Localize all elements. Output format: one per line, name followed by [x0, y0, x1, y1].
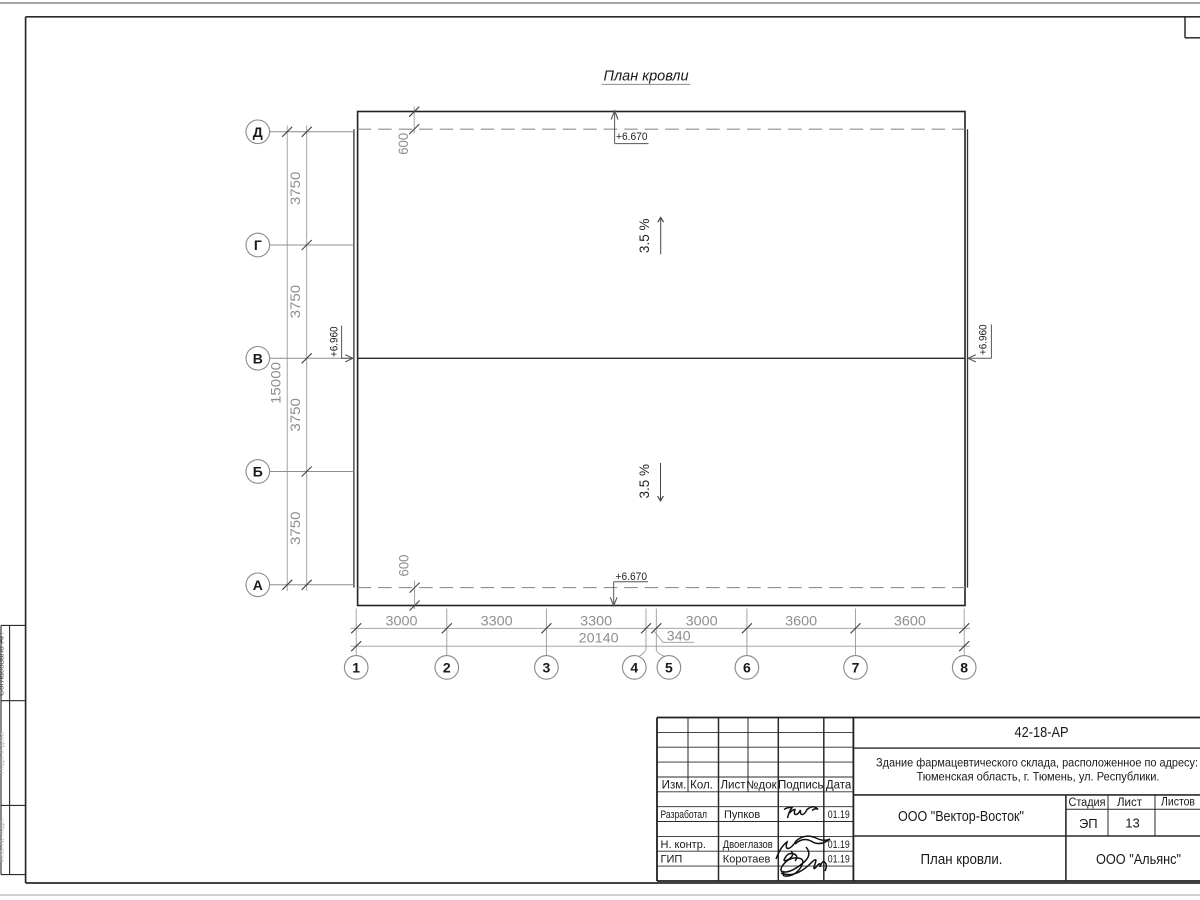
svg-text:Коротаев: Коротаев [723, 854, 771, 866]
svg-text:№док.: №док. [746, 779, 780, 791]
svg-text:ООО "Вектор-Восток": ООО "Вектор-Восток" [898, 808, 1024, 825]
svg-text:Здание фармацевтического склад: Здание фармацевтического склада, располо… [876, 756, 1198, 770]
svg-text:01.19: 01.19 [828, 854, 850, 866]
svg-text:Д: Д [253, 124, 263, 140]
svg-text:План кровли: План кровли [603, 69, 688, 85]
svg-text:Изм.: Изм. [662, 779, 687, 791]
svg-text:8: 8 [960, 659, 968, 675]
svg-text:Лист: Лист [1117, 797, 1143, 809]
svg-text:Г: Г [254, 237, 262, 253]
svg-text:3: 3 [543, 659, 551, 675]
svg-text:4: 4 [630, 659, 638, 675]
svg-text:Лист: Лист [721, 779, 747, 791]
svg-text:3300: 3300 [580, 613, 612, 629]
svg-text:3300: 3300 [481, 613, 513, 629]
svg-text:3600: 3600 [785, 613, 817, 629]
svg-text:5: 5 [665, 659, 673, 675]
svg-text:Подп. и дата: Подп. и дата [0, 732, 5, 773]
svg-text:+6.960: +6.960 [977, 325, 989, 356]
svg-text:2: 2 [443, 659, 451, 675]
svg-text:6: 6 [743, 659, 751, 675]
svg-text:Листов: Листов [1161, 796, 1195, 808]
svg-text:42-18-АР: 42-18-АР [1015, 724, 1069, 741]
svg-text:3000: 3000 [686, 613, 718, 629]
svg-text:+6.670: +6.670 [616, 571, 648, 583]
svg-text:1: 1 [352, 659, 360, 675]
svg-text:+6.960: +6.960 [328, 327, 340, 358]
svg-text:Кол.: Кол. [690, 779, 713, 791]
svg-text:7: 7 [852, 659, 860, 675]
svg-text:Б: Б [253, 464, 263, 480]
svg-text:3750: 3750 [287, 398, 303, 432]
svg-text:А: А [253, 577, 263, 593]
svg-text:Тюменская область, г. Тюмень,: Тюменская область, г. Тюмень, ул. Респуб… [917, 769, 1160, 783]
svg-text:01.19: 01.19 [828, 839, 850, 851]
svg-text:Двоеглазов: Двоеглазов [723, 839, 773, 851]
svg-text:Н. контр.: Н. контр. [661, 839, 706, 851]
svg-text:ЭП: ЭП [1079, 816, 1098, 831]
svg-text:3.5 %: 3.5 % [637, 219, 652, 254]
svg-text:3.5 %: 3.5 % [637, 464, 652, 499]
svg-text:+6.670: +6.670 [616, 131, 648, 143]
svg-text:3750: 3750 [287, 171, 303, 205]
svg-text:600: 600 [395, 133, 411, 155]
svg-text:13: 13 [1125, 815, 1139, 830]
svg-text:600: 600 [395, 554, 411, 576]
svg-text:3000: 3000 [386, 613, 418, 629]
svg-text:Инв. № подл.: Инв. № подл. [0, 818, 5, 862]
svg-text:3600: 3600 [894, 613, 926, 629]
svg-text:Дата: Дата [826, 779, 852, 791]
svg-text:3750: 3750 [287, 511, 303, 545]
svg-text:ООО "Альянс": ООО "Альянс" [1096, 851, 1181, 868]
svg-text:Пупков: Пупков [724, 809, 760, 821]
svg-text:Разработал: Разработал [661, 809, 708, 821]
svg-text:ГИП: ГИП [661, 854, 683, 866]
svg-text:15000: 15000 [267, 362, 283, 404]
svg-text:3750: 3750 [287, 285, 303, 319]
svg-text:01.19: 01.19 [828, 809, 850, 821]
svg-text:Согласовано АР.: Согласовано АР. [0, 632, 5, 696]
svg-text:20140: 20140 [579, 629, 619, 645]
svg-text:План кровли.: План кровли. [921, 851, 1003, 868]
svg-text:В: В [253, 350, 263, 366]
svg-text:340: 340 [667, 628, 691, 644]
svg-text:Подпись: Подпись [778, 779, 824, 791]
svg-text:Стадия: Стадия [1069, 797, 1106, 809]
